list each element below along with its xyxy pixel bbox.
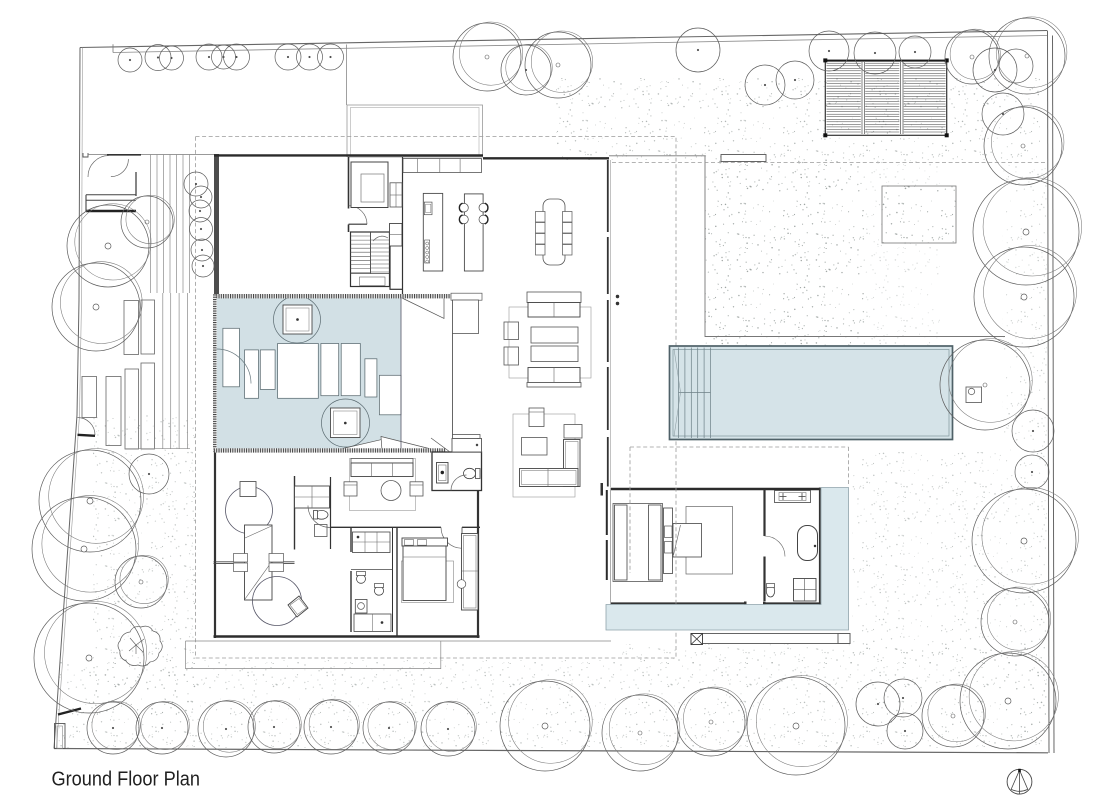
svg-text:Ground Floor Plan: Ground Floor Plan [52, 768, 201, 791]
